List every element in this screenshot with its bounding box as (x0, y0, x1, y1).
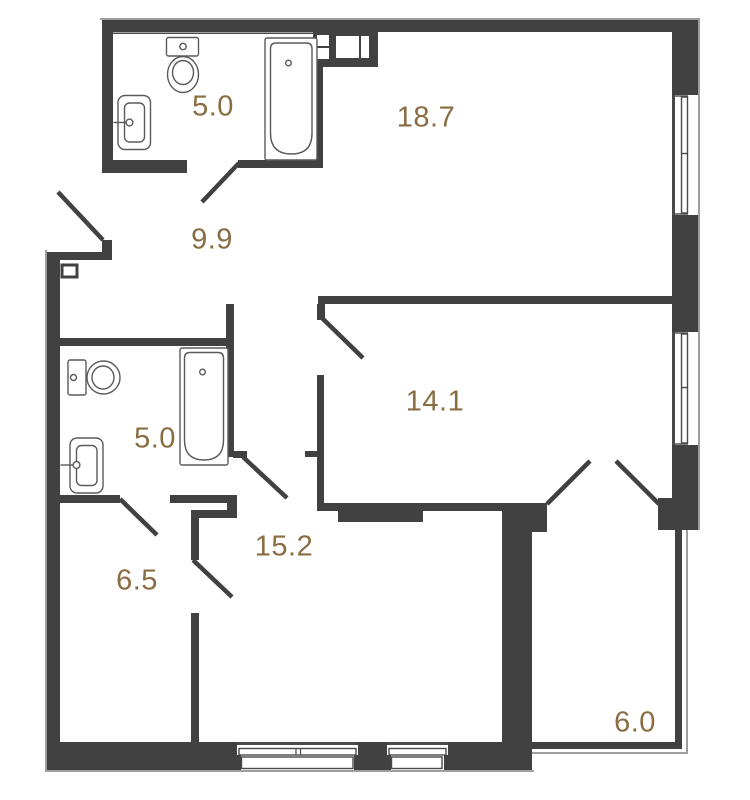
window-frame (389, 749, 446, 756)
door-bathroom-middle (120, 499, 157, 535)
wall-top (102, 20, 698, 32)
window-inner-face (672, 332, 675, 445)
wall-junction-a (170, 495, 237, 503)
door-swings (58, 163, 659, 597)
wall-bathroom-top-left (102, 20, 113, 173)
floor-plan: 5.0 18.7 9.9 5.0 14.1 15.2 6.5 6.0 (0, 0, 750, 800)
shaft-duct-4 (361, 36, 369, 58)
wall-bathroom-mid-top (47, 338, 228, 346)
wall-right-middle (672, 215, 698, 332)
room-label-living-room: 18.7 (397, 102, 455, 135)
door-balcony-right-leaf (616, 461, 659, 504)
toilet-top (167, 38, 199, 93)
bathroom-top-inner-line (113, 33, 313, 35)
window-jamb (444, 755, 448, 770)
hairline-balcony-bottom (532, 752, 688, 754)
sink-top (114, 96, 151, 150)
wall-right-upper (672, 32, 698, 95)
room-label-kitchen-living: 15.2 (255, 531, 313, 564)
toilet-middle (68, 360, 120, 395)
room-label-balcony: 6.0 (614, 707, 656, 740)
window-jamb (387, 755, 391, 770)
door-balcony-left-leaf (547, 461, 590, 504)
bathtub-top (265, 38, 317, 160)
wall-bottom-pier (358, 742, 387, 770)
wall-beam-under-bedroom (338, 511, 423, 522)
room-label-bedroom: 14.1 (406, 386, 464, 419)
door-bedroom (322, 318, 363, 358)
window-sill (242, 757, 354, 769)
bathtub-middle (180, 348, 228, 465)
room-label-bathroom-middle: 5.0 (134, 423, 176, 456)
wall-bathroom-top-bottom-a (113, 160, 187, 173)
wall-junction-b (227, 503, 237, 518)
window-inner-face (387, 742, 448, 745)
wall-partition-upper (191, 510, 199, 560)
hairline-right (698, 18, 700, 530)
hairline-balcony-right (686, 530, 688, 754)
hairline-top (100, 18, 700, 20)
wall-entry-corner (102, 240, 112, 260)
wall-bedroom-bottom (320, 503, 547, 511)
window-sill (392, 757, 443, 769)
electrical-panel (62, 265, 77, 277)
window-jamb (354, 755, 358, 770)
room-label-bathroom-top: 5.0 (192, 91, 234, 124)
door-corridor-kitchen (193, 560, 232, 597)
room-label-hallway: 9.9 (191, 224, 233, 257)
door-hall-kitchen (243, 457, 287, 498)
wall-left (47, 252, 60, 770)
room-label-corridor: 6.5 (116, 565, 158, 598)
window-bedroom (672, 332, 698, 445)
window-kitchen-small (387, 742, 448, 770)
wall-living-bedroom (318, 296, 672, 304)
shaft-duct-3 (336, 36, 359, 58)
wall-bathroom-mid-bottom (47, 495, 120, 503)
wall-tick-left (305, 451, 317, 457)
wall-partition-lower (191, 613, 199, 742)
window-frame (682, 334, 688, 443)
window-inner-face (237, 742, 358, 745)
window-frame (682, 97, 688, 213)
wall-right-lower (672, 445, 698, 530)
shaft-duct-2 (317, 48, 329, 59)
sink-middle (61, 438, 104, 493)
bathroom-middle-fixtures (61, 348, 229, 493)
window-living-room (672, 95, 698, 215)
shaft-duct-1 (317, 35, 329, 46)
hairline-bottom (45, 770, 534, 772)
hairline-left (45, 250, 47, 772)
window-frame (239, 749, 356, 756)
ventilation-shaft (313, 32, 378, 67)
window-jamb (237, 755, 241, 770)
balcony-glazing-right (675, 530, 682, 749)
floor-plan-drawing (0, 0, 750, 800)
wall-kitchen-balcony (502, 511, 532, 770)
balcony-glazing-bottom (532, 742, 682, 749)
wall-bottom-left (47, 742, 237, 770)
door-bathroom-top (202, 163, 239, 202)
wall-bedroom-left (317, 375, 324, 511)
wall-junction-c (199, 510, 227, 518)
door-entrance (58, 192, 103, 240)
wall-bathroom-top-bottom-b (238, 160, 317, 168)
window-inner-face (672, 95, 675, 215)
window-kitchen-large (237, 742, 358, 770)
